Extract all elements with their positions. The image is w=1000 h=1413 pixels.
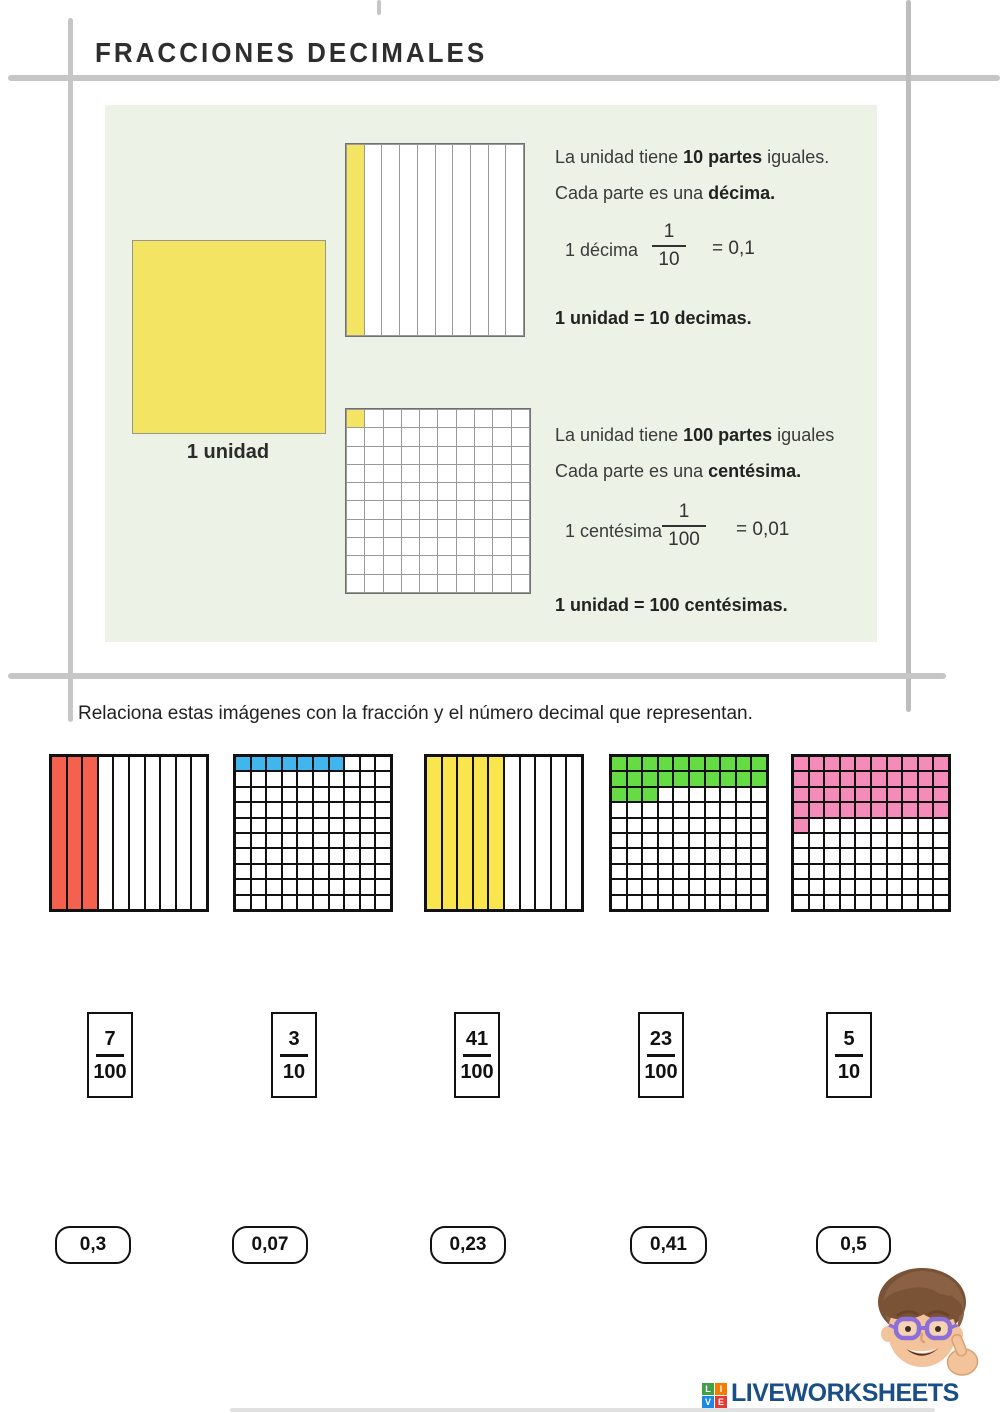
grid-cell <box>872 788 886 801</box>
grid-cell <box>643 788 657 801</box>
tenths-line1: La unidad tiene 10 partes iguales. <box>555 147 829 168</box>
grid-cell <box>628 819 642 832</box>
grid-cell <box>659 849 673 862</box>
grid-cell <box>365 575 382 592</box>
grid-cell <box>706 849 720 862</box>
fraction-numerator: 7 <box>104 1028 115 1050</box>
grid-cell <box>674 849 688 862</box>
fraction-bar <box>652 245 686 247</box>
grid-cell <box>612 849 626 862</box>
grid-cell <box>612 803 626 816</box>
grid-cell <box>659 803 673 816</box>
grid-cell <box>752 757 766 770</box>
grid-cell <box>934 896 948 909</box>
grid-cell <box>298 896 312 909</box>
grid-cell <box>330 772 344 785</box>
grid-cell <box>457 556 474 573</box>
grid-cell <box>267 757 281 770</box>
grid-cell <box>361 849 375 862</box>
grid-cell <box>825 803 839 816</box>
grid-cell <box>267 834 281 847</box>
grid-cell <box>512 575 529 592</box>
grid-cell <box>737 788 751 801</box>
grid-cell <box>841 788 855 801</box>
grid-cell <box>347 465 364 482</box>
grid-cell <box>752 772 766 785</box>
grid-cell <box>402 483 419 500</box>
grid-cell <box>872 757 886 770</box>
grid-cell <box>706 865 720 878</box>
grid-cell <box>298 788 312 801</box>
grid-cell <box>690 757 704 770</box>
exercise-grid-pink-hundredths[interactable] <box>791 754 951 912</box>
grid-cell <box>674 772 688 785</box>
grid-cell <box>438 520 455 537</box>
grid-cell <box>298 772 312 785</box>
grid-cell <box>420 575 437 592</box>
grid-cell <box>919 819 933 832</box>
bottom-smudge <box>230 1408 935 1412</box>
hundredths-equals: = 0,01 <box>736 519 789 541</box>
grid-cell <box>361 788 375 801</box>
grid-cell <box>457 501 474 518</box>
grid-cell <box>872 819 886 832</box>
grid-cell <box>252 772 266 785</box>
decimal-oval-0-23[interactable]: 0,23 <box>430 1226 506 1264</box>
decimal-oval-0-5[interactable]: 0,5 <box>816 1226 891 1264</box>
grid-cell <box>690 772 704 785</box>
fraction-card-23-100[interactable]: 23 100 <box>638 1012 684 1098</box>
grid-cell <box>825 834 839 847</box>
grid-cell <box>384 520 401 537</box>
hundredths-line2: Cada parte es una centésima. <box>555 461 801 482</box>
grid-cell <box>612 819 626 832</box>
grid-cell <box>856 788 870 801</box>
grid-cell <box>438 447 455 464</box>
grid-cell <box>903 896 917 909</box>
grid-cell <box>493 428 510 445</box>
grid-cell <box>643 849 657 862</box>
grid-cell <box>903 849 917 862</box>
grid-cell <box>934 880 948 893</box>
tenths-line1-pre: La unidad tiene <box>555 147 683 167</box>
tenths-line2: Cada parte es una décima. <box>555 183 775 204</box>
explainer-tenths-grid <box>345 143 525 337</box>
unit-square <box>132 240 326 434</box>
grid-cell <box>690 788 704 801</box>
grid-cell <box>236 849 250 862</box>
grid-cell <box>384 538 401 555</box>
grid-cell <box>347 428 364 445</box>
grid-cell <box>457 575 474 592</box>
grid-cell <box>810 788 824 801</box>
grid-cell <box>919 834 933 847</box>
grid-cell <box>706 819 720 832</box>
grid-cell <box>628 757 642 770</box>
grid-cell <box>457 538 474 555</box>
grid-cell <box>628 849 642 862</box>
grid-cell <box>365 145 382 335</box>
grid-cell <box>345 865 359 878</box>
grid-cell <box>825 865 839 878</box>
grid-cell <box>552 757 566 909</box>
logo-tile: V <box>702 1396 714 1408</box>
frame-right-line <box>906 0 911 712</box>
grid-cell <box>402 575 419 592</box>
grid-cell <box>856 772 870 785</box>
grid-cell <box>130 757 144 909</box>
grid-cell <box>283 865 297 878</box>
grid-cell <box>512 447 529 464</box>
tenths-line1-post: iguales. <box>762 147 829 167</box>
grid-cell <box>512 501 529 518</box>
grid-cell <box>402 520 419 537</box>
grid-cell <box>643 880 657 893</box>
grid-cell <box>721 896 735 909</box>
grid-cell <box>841 880 855 893</box>
grid-cell <box>347 447 364 464</box>
grid-cell <box>475 410 492 427</box>
grid-cell <box>376 803 390 816</box>
grid-cell <box>856 803 870 816</box>
grid-cell <box>114 757 128 909</box>
grid-cell <box>252 880 266 893</box>
explainer-hundredths-grid <box>345 408 531 594</box>
grid-cell <box>236 803 250 816</box>
frame-top-line <box>8 75 1000 81</box>
grid-cell <box>493 465 510 482</box>
fraction-card-41-100[interactable]: 41 100 <box>454 1012 500 1098</box>
grid-cell <box>674 757 688 770</box>
grid-cell <box>659 834 673 847</box>
fraction-card-3-10[interactable]: 3 10 <box>271 1012 317 1098</box>
grid-cell <box>856 880 870 893</box>
grid-cell <box>856 865 870 878</box>
grid-cell <box>628 772 642 785</box>
grid-cell <box>283 788 297 801</box>
grid-cell <box>628 788 642 801</box>
grid-cell <box>841 834 855 847</box>
grid-cell <box>365 483 382 500</box>
grid-cell <box>934 788 948 801</box>
grid-cell <box>489 145 506 335</box>
grid-cell <box>475 575 492 592</box>
grid-cell <box>643 757 657 770</box>
grid-cell <box>330 880 344 893</box>
grid-cell <box>512 410 529 427</box>
grid-cell <box>376 757 390 770</box>
grid-cell <box>794 757 808 770</box>
grid-cell <box>794 880 808 893</box>
fraction-denominator: 100 <box>460 1061 493 1083</box>
grid-cell <box>457 520 474 537</box>
grid-cell <box>721 803 735 816</box>
grid-cell <box>872 865 886 878</box>
grid-cell <box>841 896 855 909</box>
grid-cell <box>888 788 902 801</box>
grid-cell <box>376 849 390 862</box>
grid-cell <box>934 849 948 862</box>
grid-cell <box>420 465 437 482</box>
grid-cell <box>825 849 839 862</box>
grid-cell <box>919 757 933 770</box>
grid-cell <box>752 865 766 878</box>
exercise-grid-yellow-tenths[interactable] <box>424 754 584 912</box>
tenths-summary: 1 unidad = 10 decimas. <box>555 308 752 329</box>
grid-cell <box>427 757 441 909</box>
grid-cell <box>252 819 266 832</box>
grid-cell <box>361 757 375 770</box>
grid-cell <box>475 501 492 518</box>
grid-cell <box>361 896 375 909</box>
grid-cell <box>330 757 344 770</box>
grid-cell <box>752 896 766 909</box>
grid-cell <box>384 501 401 518</box>
fraction-bar <box>96 1054 124 1057</box>
fraction-bar <box>835 1054 863 1057</box>
grid-cell <box>493 575 510 592</box>
grid-cell <box>361 819 375 832</box>
grid-cell <box>919 849 933 862</box>
grid-cell <box>493 483 510 500</box>
grid-cell <box>521 757 535 909</box>
grid-cell <box>856 819 870 832</box>
worksheet-page: FRACCIONES DECIMALES 1 unidad La unidad … <box>0 0 1000 1413</box>
grid-cell <box>283 834 297 847</box>
exercise-grid-blue-hundredths[interactable] <box>233 754 393 912</box>
grid-cell <box>659 865 673 878</box>
grid-cell <box>706 788 720 801</box>
grid-cell <box>475 447 492 464</box>
hundredths-line1-bold: 100 partes <box>683 425 772 445</box>
grid-cell <box>674 788 688 801</box>
grid-cell <box>457 465 474 482</box>
grid-cell <box>919 803 933 816</box>
grid-cell <box>690 865 704 878</box>
grid-cell <box>365 556 382 573</box>
grid-cell <box>146 757 160 909</box>
grid-cell <box>298 834 312 847</box>
grid-cell <box>752 788 766 801</box>
grid-cell <box>872 772 886 785</box>
grid-cell <box>345 772 359 785</box>
grid-cell <box>737 819 751 832</box>
grid-cell <box>298 803 312 816</box>
fraction-denominator: 10 <box>838 1061 860 1083</box>
grid-cell <box>347 483 364 500</box>
liveworksheets-tiles-icon: LIVE <box>702 1383 727 1408</box>
frame-bottom-line <box>8 673 946 679</box>
grid-cell <box>706 880 720 893</box>
grid-cell <box>161 757 175 909</box>
grid-cell <box>690 819 704 832</box>
grid-cell <box>752 880 766 893</box>
grid-cell <box>737 849 751 862</box>
grid-cell <box>345 880 359 893</box>
exercise-grid-red-tenths[interactable] <box>49 754 209 912</box>
grid-cell <box>347 145 364 335</box>
grid-cell <box>643 834 657 847</box>
grid-cell <box>721 757 735 770</box>
grid-cell <box>252 788 266 801</box>
grid-cell <box>177 757 191 909</box>
grid-cell <box>436 145 453 335</box>
decimal-oval-0-3[interactable]: 0,3 <box>55 1226 131 1264</box>
grid-cell <box>443 757 457 909</box>
grid-cell <box>298 880 312 893</box>
grid-cell <box>267 880 281 893</box>
grid-cell <box>737 880 751 893</box>
grid-cell <box>737 865 751 878</box>
grid-cell <box>314 865 328 878</box>
grid-cell <box>471 145 488 335</box>
grid-cell <box>628 880 642 893</box>
grid-cell <box>438 538 455 555</box>
grid-cell <box>752 819 766 832</box>
grid-cell <box>474 757 488 909</box>
grid-cell <box>361 834 375 847</box>
grid-cell <box>361 880 375 893</box>
fraction-numerator: 5 <box>843 1028 854 1050</box>
grid-cell <box>512 465 529 482</box>
grid-cell <box>856 834 870 847</box>
grid-cell <box>493 520 510 537</box>
grid-cell <box>252 896 266 909</box>
fraction-card-7-100[interactable]: 7 100 <box>87 1012 133 1098</box>
grid-cell <box>283 896 297 909</box>
grid-cell <box>420 428 437 445</box>
grid-cell <box>674 819 688 832</box>
grid-cell <box>314 757 328 770</box>
grid-cell <box>706 896 720 909</box>
grid-cell <box>825 788 839 801</box>
grid-cell <box>721 880 735 893</box>
grid-cell <box>856 849 870 862</box>
grid-cell <box>903 819 917 832</box>
grid-cell <box>376 819 390 832</box>
grid-cell <box>314 896 328 909</box>
grid-cell <box>236 896 250 909</box>
grid-cell <box>458 757 472 909</box>
tenths-line2-pre: Cada parte es una <box>555 183 708 203</box>
mascot-avatar <box>858 1262 988 1384</box>
grid-cell <box>283 849 297 862</box>
grid-cell <box>659 757 673 770</box>
grid-cell <box>643 803 657 816</box>
grid-cell <box>236 880 250 893</box>
grid-cell <box>659 896 673 909</box>
grid-cell <box>810 896 824 909</box>
frame-left-line <box>68 18 73 722</box>
grid-cell <box>888 772 902 785</box>
grid-cell <box>505 757 519 909</box>
grid-cell <box>345 834 359 847</box>
grid-cell <box>298 757 312 770</box>
grid-cell <box>567 757 581 909</box>
grid-cell <box>347 520 364 537</box>
grid-cell <box>628 803 642 816</box>
grid-cell <box>903 880 917 893</box>
grid-cell <box>934 865 948 878</box>
grid-cell <box>536 757 550 909</box>
grid-cell <box>330 819 344 832</box>
grid-cell <box>888 819 902 832</box>
grid-cell <box>612 880 626 893</box>
grid-cell <box>330 834 344 847</box>
grid-cell <box>475 483 492 500</box>
grid-cell <box>267 865 281 878</box>
decimal-oval-0-07[interactable]: 0,07 <box>232 1226 308 1264</box>
tenths-fraction-numerator: 1 <box>664 222 675 242</box>
grid-cell <box>872 896 886 909</box>
fraction-numerator: 3 <box>288 1028 299 1050</box>
grid-cell <box>794 849 808 862</box>
grid-cell <box>453 145 470 335</box>
page-title: FRACCIONES DECIMALES <box>95 36 487 69</box>
grid-cell <box>402 501 419 518</box>
grid-cell <box>475 465 492 482</box>
grid-cell <box>384 465 401 482</box>
grid-cell <box>347 575 364 592</box>
grid-cell <box>345 819 359 832</box>
tenths-fraction-denominator: 10 <box>658 250 679 270</box>
grid-cell <box>721 819 735 832</box>
decimal-oval-0-41[interactable]: 0,41 <box>630 1226 707 1264</box>
grid-cell <box>794 803 808 816</box>
grid-cell <box>298 865 312 878</box>
grid-cell <box>493 410 510 427</box>
exercise-grid-green-hundredths[interactable] <box>609 754 769 912</box>
fraction-numerator: 41 <box>466 1028 488 1050</box>
grid-cell <box>192 757 206 909</box>
grid-cell <box>283 772 297 785</box>
grid-cell <box>376 880 390 893</box>
fraction-denominator: 10 <box>283 1061 305 1083</box>
grid-cell <box>934 772 948 785</box>
fraction-card-5-10[interactable]: 5 10 <box>826 1012 872 1098</box>
grid-cell <box>903 772 917 785</box>
grid-cell <box>267 849 281 862</box>
grid-cell <box>888 849 902 862</box>
grid-cell <box>298 819 312 832</box>
fraction-bar <box>280 1054 308 1057</box>
grid-cell <box>361 865 375 878</box>
grid-cell <box>376 865 390 878</box>
tenths-fraction-label: 1 décima <box>565 240 638 261</box>
grid-cell <box>659 880 673 893</box>
grid-cell <box>506 145 523 335</box>
logo-tile: I <box>715 1383 727 1395</box>
grid-cell <box>365 520 382 537</box>
liveworksheets-logo-text: LIVEWORKSHEETS <box>731 1379 959 1408</box>
grid-cell <box>347 501 364 518</box>
grid-cell <box>68 757 82 909</box>
grid-cell <box>236 819 250 832</box>
fraction-bar <box>662 525 706 527</box>
grid-cell <box>420 520 437 537</box>
hundredths-line1-post: iguales <box>772 425 834 445</box>
hundredths-fraction-denominator: 100 <box>668 530 700 550</box>
grid-cell <box>384 428 401 445</box>
grid-cell <box>825 772 839 785</box>
grid-cell <box>330 849 344 862</box>
grid-cell <box>457 410 474 427</box>
unit-square-label: 1 unidad <box>132 441 324 464</box>
grid-cell <box>810 772 824 785</box>
grid-cell <box>512 483 529 500</box>
grid-cell <box>810 880 824 893</box>
grid-cell <box>872 849 886 862</box>
